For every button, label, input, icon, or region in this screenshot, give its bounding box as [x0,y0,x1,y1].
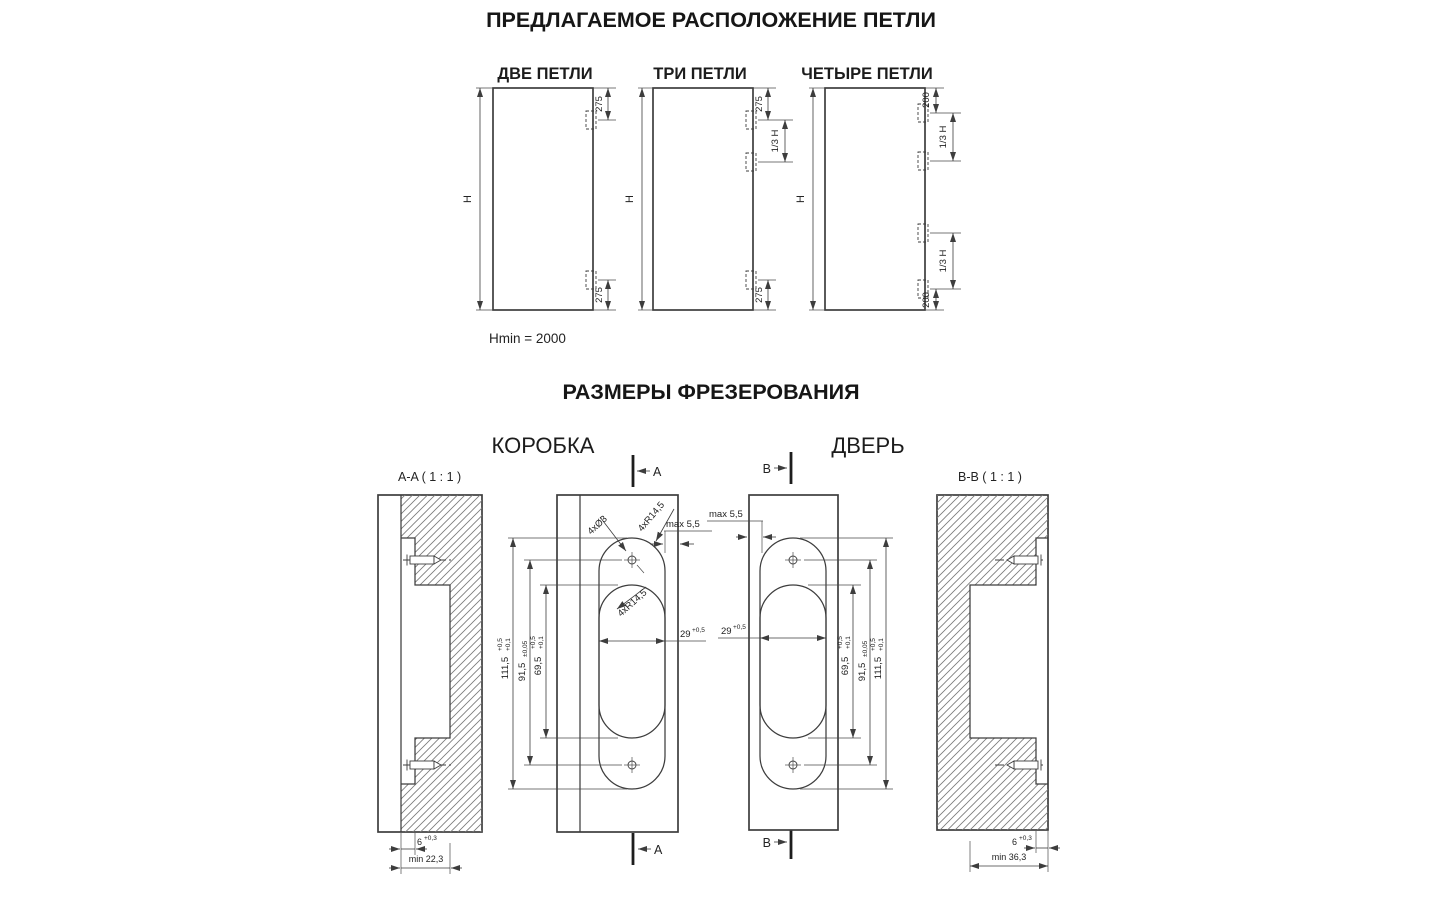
dim-91-tol: ±0,05 [862,640,869,657]
dim-69-tol-lower: +0,1 [845,636,852,649]
hmin-note: Hmin = 2000 [489,331,566,346]
door1-leaf [493,88,593,310]
door2-leaf [653,88,753,310]
frame-min-depth: min 22,3 [409,854,444,864]
dim-111-tol-upper: +0,5 [870,638,877,651]
dim-69-tol-upper: +0,5 [530,636,537,649]
frame-width-tolerance: +0,5 [692,627,705,634]
dim-111-tol-lower: +0,1 [505,638,512,651]
door-four-hinges: ЧЕТЫРЕ ПЕТЛИ H 200 1/3 H 1/3 H [795,65,961,310]
door2-dim-third: 1/3 H [770,130,781,153]
dim-111-value: 111,5 [500,657,511,679]
door3-h-label: H [795,195,807,203]
door-two-hinges: ДВЕ ПЕТЛИ H 275 275 [462,65,616,310]
door3-dim-third-bottom: 1/3 H [938,250,949,273]
frame-depth-tolerance: +0,3 [424,835,437,842]
door3-dim-bottom: 200 [921,292,932,308]
door2-dim-top: 275 [754,96,765,112]
frame-view-title: КОРОБКА [492,433,595,458]
milling-title: РАЗМЕРЫ ФРЕЗЕРОВАНИЯ [562,380,859,404]
door3-leaf [825,88,925,310]
cut-marker-a-bottom: A [633,833,663,865]
milling-section: РАЗМЕРЫ ФРЕЗЕРОВАНИЯ КОРОБКА ДВЕРЬ A-A (… [378,380,1060,874]
frame-plate-outline [557,495,678,832]
dim-69-value: 69,5 [840,657,851,676]
door-width-value: 29 [721,626,732,637]
technical-drawing-page: ПРЕДЛАГАЕМОЕ РАСПОЛОЖЕНИЕ ПЕТЛИ Hmin = 2… [0,0,1440,900]
marker-b-label: B [763,836,771,850]
door-three-hinges: ТРИ ПЕТЛИ H 275 1/3 H 275 [624,65,793,310]
drawing-canvas: ПРЕДЛАГАЕМОЕ РАСПОЛОЖЕНИЕ ПЕТЛИ Hmin = 2… [0,0,1440,900]
door-depth-value: 6 [1012,837,1017,847]
dim-111-tol-upper: +0,5 [497,638,504,651]
door-width-tolerance: +0,5 [733,624,746,631]
door3-dim-third-top: 1/3 H [938,126,949,149]
dim-111-tol-lower: +0,1 [878,638,885,651]
dim-69-tol-upper: +0,5 [837,636,844,649]
frame-plate-view: 4xØ3 4xR14,5 4xR14,5 29 +0,5 max 5,5 [557,495,712,832]
section-bb-label: B-B ( 1 : 1 ) [958,470,1022,484]
door-max-gap-label: max 5,5 [709,509,743,520]
cut-marker-a-top: A [633,455,662,487]
door-plate-view: 29 +0,5 max 5,5 [707,495,838,830]
frame-max-gap-label: max 5,5 [666,519,700,530]
marker-a-label: A [654,843,663,857]
cut-marker-b-bottom: B [763,827,791,859]
section-bb-view: 6 +0,3 min 36,3 [937,495,1060,872]
door-depth-tolerance: +0,3 [1019,835,1032,842]
frame-width-value: 29 [680,629,691,640]
cut-marker-b-top: B [763,452,791,484]
section-aa-view: 6 +0,3 min 22,3 [378,495,482,874]
section-aa-label: A-A ( 1 : 1 ) [398,470,461,484]
marker-b-label: B [763,462,771,476]
door1-dim-top: 275 [594,96,605,112]
door-min-depth: min 36,3 [992,852,1027,862]
dim-91-tol: ±0,05 [522,640,529,657]
dim-91-value: 91,5 [517,663,528,682]
door2-h-label: H [624,195,636,203]
door-depth-dims: 6 +0,3 min 36,3 [970,831,1060,872]
hinge-placement-section: ПРЕДЛАГАЕМОЕ РАСПОЛОЖЕНИЕ ПЕТЛИ Hmin = 2… [462,8,961,346]
door1-dim-bottom: 275 [594,287,605,303]
door2-dim-bottom: 275 [754,287,765,303]
door-view-title: ДВЕРЬ [831,433,904,458]
dim-91-value: 91,5 [857,663,868,682]
door1-label: ДВЕ ПЕТЛИ [497,65,592,83]
frame-depth-value: 6 [417,837,422,847]
placement-title: ПРЕДЛАГАЕМОЕ РАСПОЛОЖЕНИЕ ПЕТЛИ [486,8,936,32]
door3-dim-top: 200 [921,92,932,108]
door1-h-label: H [462,195,474,203]
marker-a-label: A [653,465,662,479]
dim-111-value: 111,5 [873,657,884,679]
door3-label: ЧЕТЫРЕ ПЕТЛИ [801,65,932,83]
dim-69-tol-lower: +0,1 [538,636,545,649]
dim-69-value: 69,5 [533,657,544,676]
frame-depth-dims: 6 +0,3 min 22,3 [389,833,462,874]
door2-label: ТРИ ПЕТЛИ [653,65,747,83]
